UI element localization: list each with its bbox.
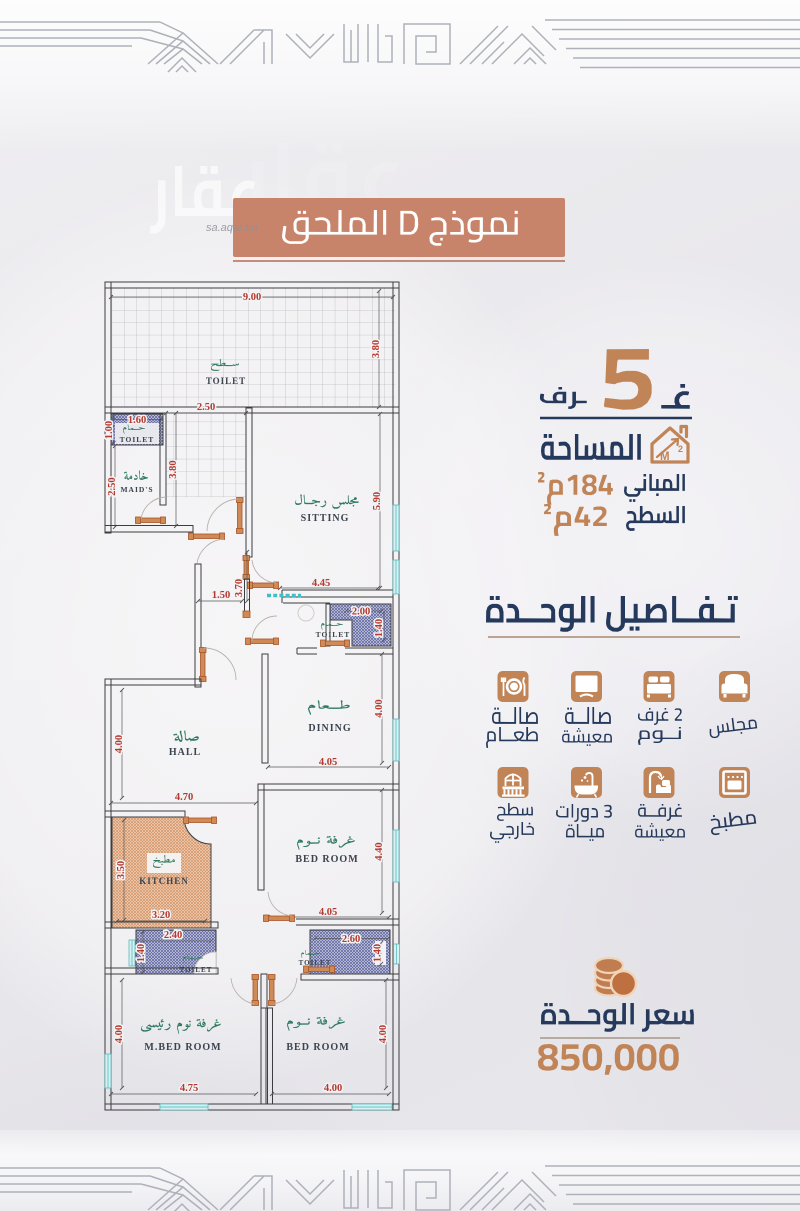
svg-text:M: M [660, 451, 670, 463]
svg-text:2: 2 [678, 444, 683, 454]
